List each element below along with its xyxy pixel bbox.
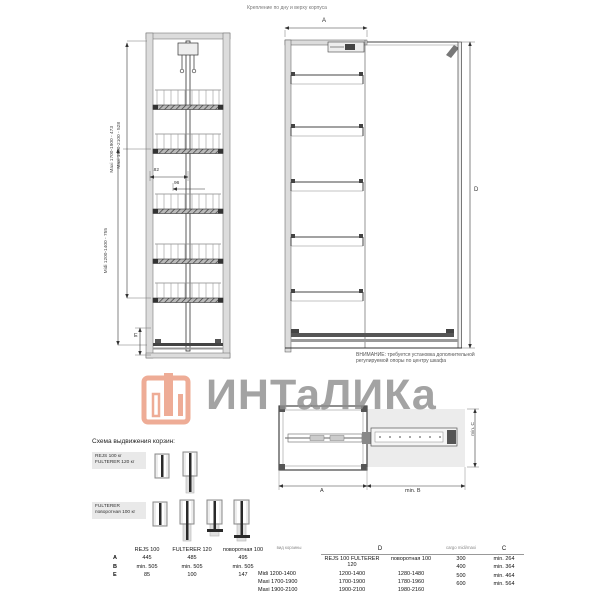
- top-mounting-note: Крепление по дну и верху корпуса: [247, 5, 327, 11]
- catalog-page: Крепление по дну и верху корпуса: [0, 0, 600, 600]
- table-cell: 445: [126, 554, 168, 562]
- side-view-drawing: [270, 15, 485, 370]
- table-cell: min. 264: [484, 555, 524, 563]
- table-d-corner: вид корзины: [257, 545, 321, 555]
- table-cell: min. 464: [484, 572, 524, 580]
- schema-group2-label: FULTERER поворотная 100 кг: [92, 502, 146, 519]
- table-d-header: REJS 100 FULTERER 120: [321, 555, 383, 570]
- table-c: cargo midi/maxi C 300 min. 264 400 min. …: [438, 545, 524, 588]
- brand-logo-icon: [140, 370, 194, 426]
- table-row-label: 500: [438, 572, 484, 580]
- schema-group2-line2: поворотная 100 кг: [95, 510, 143, 516]
- table-d-span-header: D: [321, 545, 439, 555]
- table-cell: 1200-1400: [321, 570, 383, 578]
- schema-group1-line2: FULTERER 120 кг: [95, 460, 143, 466]
- table-cell: 100: [168, 571, 216, 579]
- table-abe-corner: [112, 546, 126, 554]
- table-cell: min. 564: [484, 580, 524, 588]
- table-row-label: 400: [438, 563, 484, 571]
- table-row-label: E: [112, 571, 126, 579]
- table-row-label: 300: [438, 555, 484, 563]
- table-cell: 1280-1480: [383, 570, 439, 578]
- brand-name: ИНТаЛИКа: [206, 374, 437, 417]
- table-d-empty: [257, 555, 321, 570]
- table-row-label: Maxi 1700-1900: [257, 578, 321, 586]
- basket-rotated-icon: [231, 498, 253, 546]
- table-c-header: C: [484, 545, 524, 555]
- table-cell: min. 505: [168, 563, 216, 571]
- table-cell: 85: [126, 571, 168, 579]
- table-row-label: Midi 1200-1400: [257, 570, 321, 578]
- table-cell: 1900-2100: [321, 586, 383, 594]
- watermark: ИНТаЛИКа: [140, 370, 437, 426]
- table-c-corner: cargo midi/maxi: [438, 545, 484, 555]
- table-row-label: A: [112, 554, 126, 562]
- basket-extended-icon: [180, 450, 200, 498]
- table-abe-header: REJS 100: [126, 546, 168, 554]
- table-d-header: поворотная 100: [383, 555, 439, 570]
- schema-title: Схема выдвижения корзин:: [92, 438, 175, 445]
- basket-extended-icon: [177, 498, 197, 546]
- table-cell: min. 364: [484, 563, 524, 571]
- table-abe: REJS 100 FULTERER 120 поворотная 100 A 4…: [112, 546, 270, 579]
- basket-closed-icon: [150, 500, 170, 530]
- table-cell: 1980-2160: [383, 586, 439, 594]
- table-cell: 485: [168, 554, 216, 562]
- basket-rotated-icon: [204, 498, 226, 546]
- front-view-drawing: [95, 25, 240, 370]
- table-cell: 1700-1900: [321, 578, 383, 586]
- basket-closed-icon: [152, 452, 172, 482]
- schema-group1-label: REJS 100 кг FULTERER 120 кг: [92, 452, 146, 469]
- table-cell: 1780-1960: [383, 578, 439, 586]
- table-abe-header: FULTERER 120: [168, 546, 216, 554]
- table-d: вид корзины D REJS 100 FULTERER 120 пово…: [257, 545, 439, 594]
- table-cell: min. 505: [126, 563, 168, 571]
- table-row-label: Maxi 1900-2100: [257, 586, 321, 594]
- table-row-label: B: [112, 563, 126, 571]
- table-row-label: 600: [438, 580, 484, 588]
